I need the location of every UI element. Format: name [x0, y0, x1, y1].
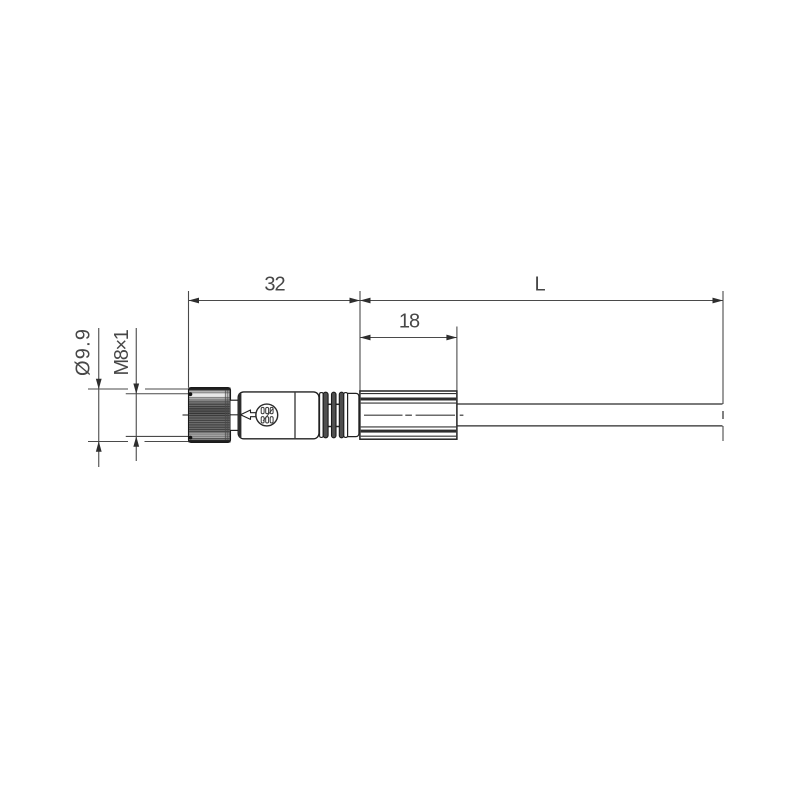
svg-text:Ø9.9: Ø9.9: [73, 328, 95, 376]
svg-text:18: 18: [399, 310, 420, 332]
svg-text:32: 32: [264, 274, 285, 296]
svg-text:M8×1: M8×1: [111, 329, 133, 375]
svg-text:L: L: [535, 274, 546, 296]
